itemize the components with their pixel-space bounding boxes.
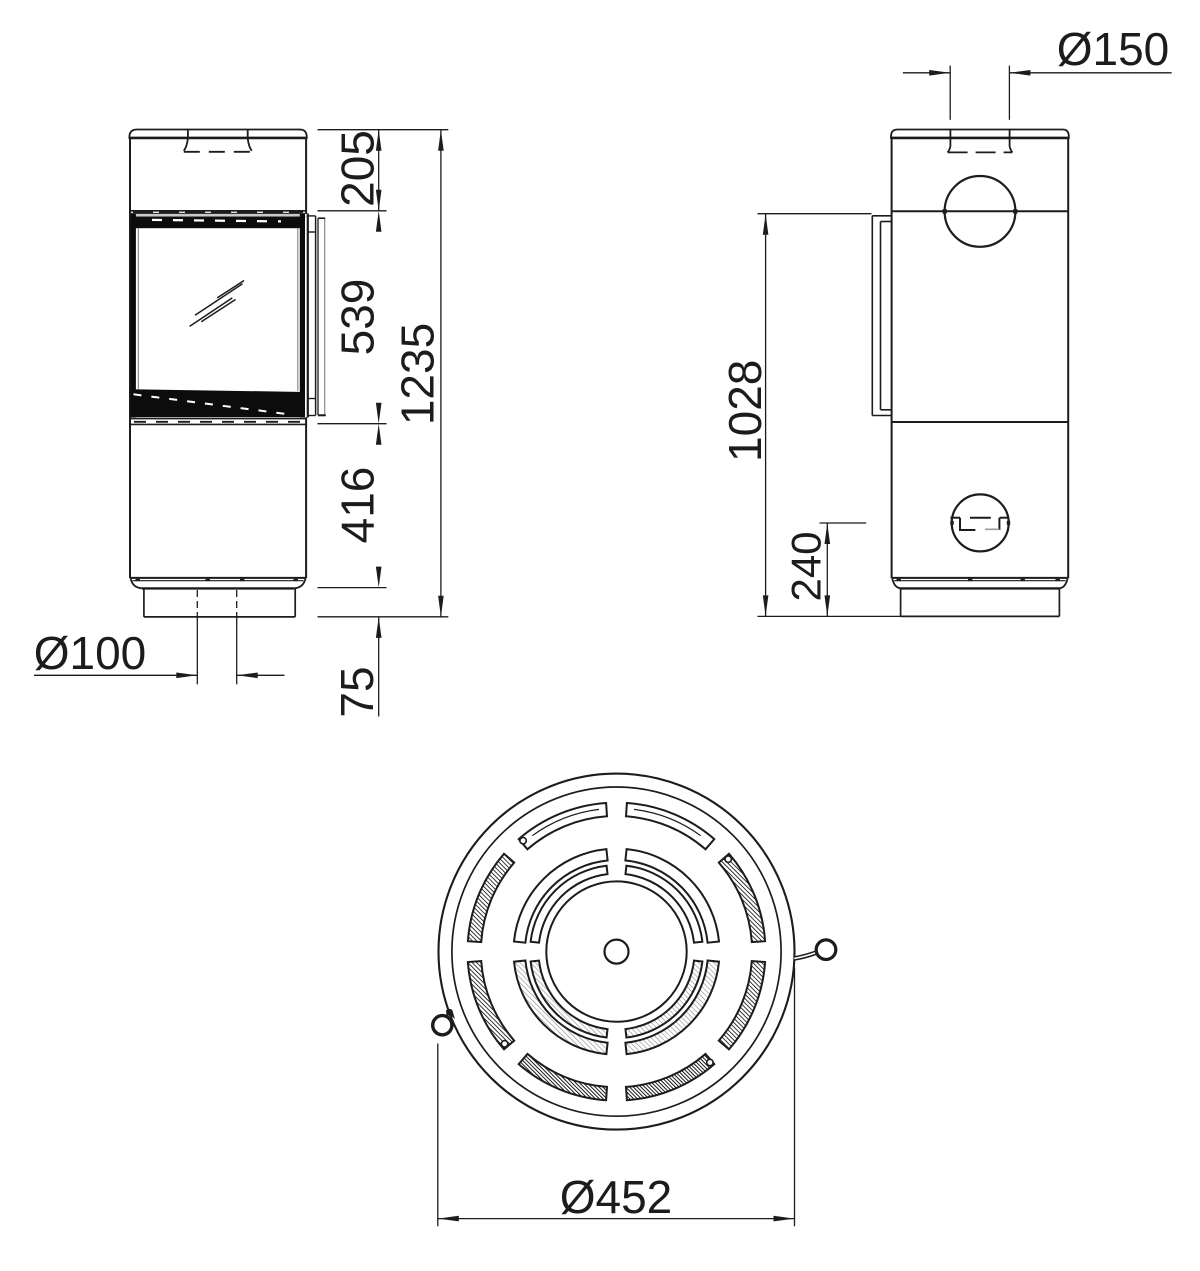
svg-text:Ø452: Ø452 — [560, 1171, 673, 1223]
svg-text:1235: 1235 — [392, 323, 444, 425]
svg-text:416: 416 — [331, 467, 383, 544]
svg-text:Ø100: Ø100 — [34, 627, 147, 679]
svg-text:205: 205 — [331, 130, 383, 207]
svg-text:75: 75 — [331, 666, 383, 717]
svg-text:539: 539 — [331, 279, 383, 356]
svg-text:Ø150: Ø150 — [1057, 23, 1170, 75]
svg-text:240: 240 — [782, 531, 829, 601]
svg-text:1028: 1028 — [719, 360, 771, 462]
